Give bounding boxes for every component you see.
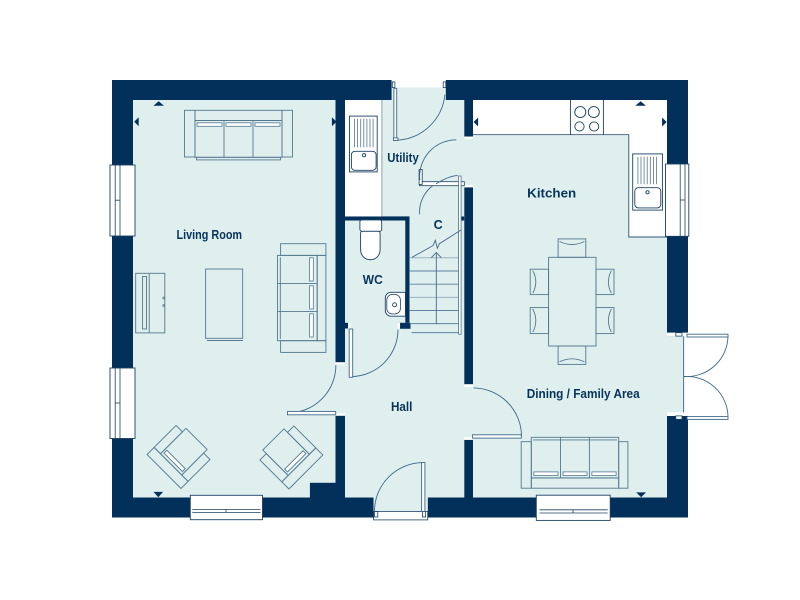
svg-text:WC: WC bbox=[363, 273, 383, 287]
svg-text:Hall: Hall bbox=[391, 400, 413, 414]
svg-text:Dining / Family Area: Dining / Family Area bbox=[527, 387, 641, 401]
svg-text:Utility: Utility bbox=[387, 151, 419, 165]
svg-text:C: C bbox=[434, 218, 443, 232]
svg-text:Living Room: Living Room bbox=[177, 228, 243, 242]
svg-text:Kitchen: Kitchen bbox=[527, 187, 576, 201]
